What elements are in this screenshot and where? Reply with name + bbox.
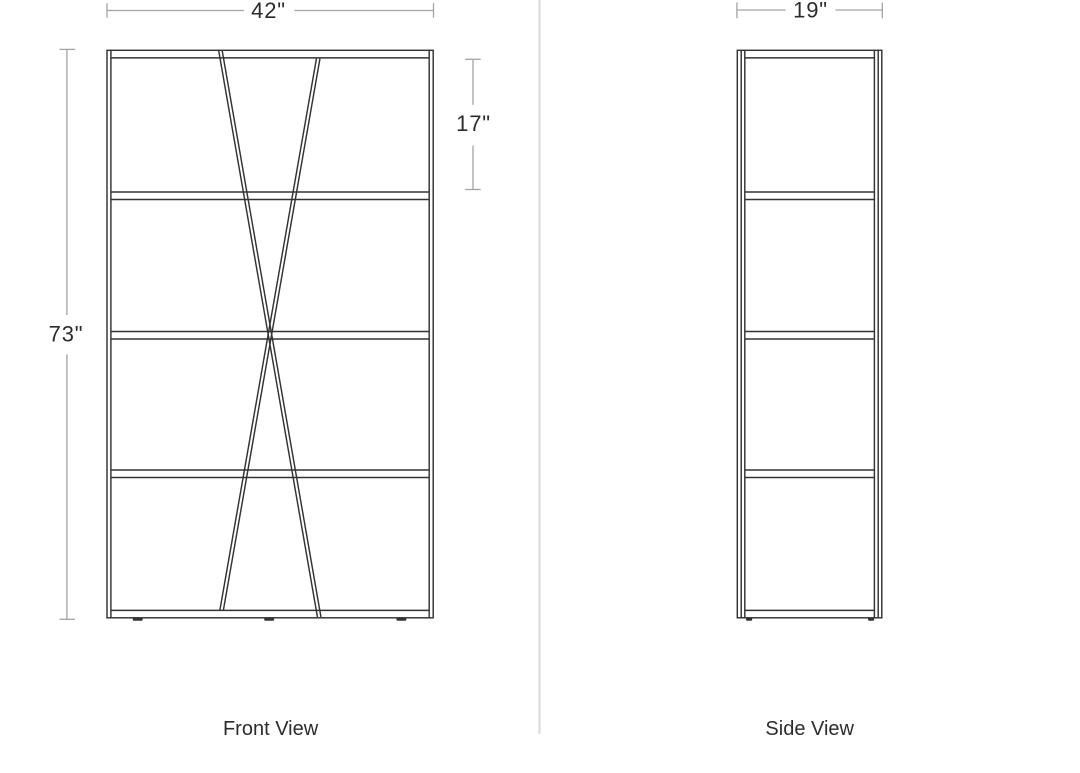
svg-text:42": 42" xyxy=(251,0,286,23)
svg-text:Side View: Side View xyxy=(765,718,854,740)
svg-text:19": 19" xyxy=(793,0,828,23)
svg-text:Front View: Front View xyxy=(223,718,319,740)
svg-text:73": 73" xyxy=(49,321,84,346)
svg-text:17": 17" xyxy=(456,111,491,136)
